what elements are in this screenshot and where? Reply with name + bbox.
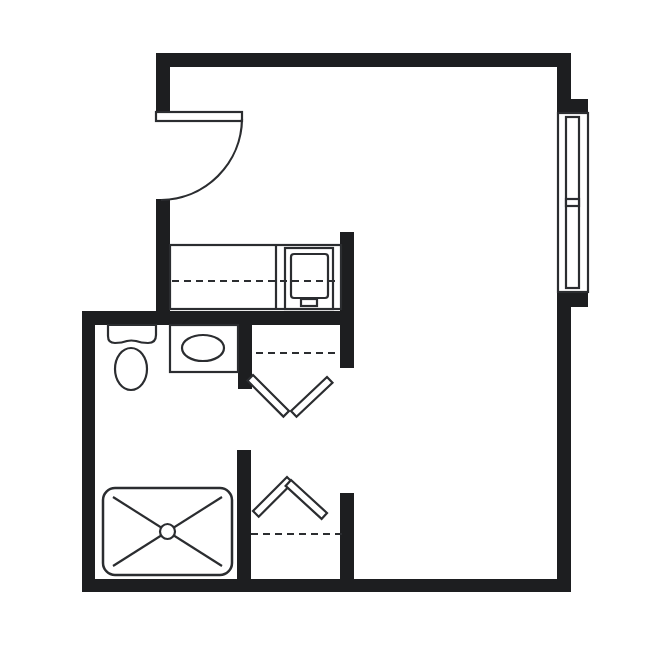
window-jamb-top xyxy=(557,99,588,113)
wall-left-above-door xyxy=(156,53,170,113)
wall-top xyxy=(156,53,570,67)
wall-right-below-window xyxy=(557,307,571,592)
window-meeting-rail xyxy=(566,199,579,206)
wall-lower-closet-left xyxy=(237,450,251,592)
wall-bottom xyxy=(82,579,571,592)
floor-plan-canvas xyxy=(0,0,650,650)
toilet-bowl xyxy=(115,348,147,390)
entry-door-leaf xyxy=(156,112,242,121)
window-jamb-bottom xyxy=(557,292,588,307)
refrigerator-handle xyxy=(301,299,317,306)
vanity-basin xyxy=(182,335,224,361)
toilet-tank xyxy=(108,325,156,343)
wall-left-below-door xyxy=(156,199,170,325)
wall-left-outer xyxy=(82,311,95,592)
wall-kitchenette-right xyxy=(340,232,354,368)
wall-lower-closet-right xyxy=(340,493,354,592)
refrigerator-body xyxy=(291,254,328,298)
floor-plan-svg xyxy=(0,0,650,650)
wall-bathroom-top xyxy=(82,311,354,325)
shower-drain xyxy=(160,524,175,539)
